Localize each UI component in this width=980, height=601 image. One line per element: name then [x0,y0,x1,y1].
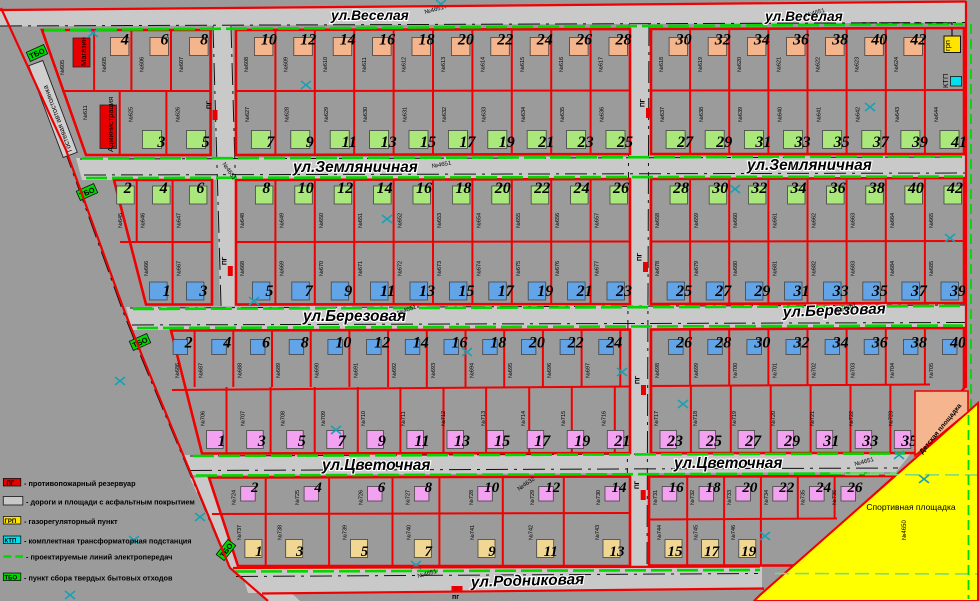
svg-text:№670: №670 [319,261,325,276]
svg-text:1: 1 [163,283,171,300]
svg-text:8: 8 [262,180,270,197]
svg-text:№717: №717 [654,411,660,426]
svg-text:- дороги и площади с асфальтны: - дороги и площади с асфальтным покрытие… [26,498,195,507]
svg-text:37: 37 [872,134,890,151]
svg-text:№686: №686 [175,363,181,378]
svg-text:19: 19 [741,544,757,560]
svg-text:15: 15 [458,283,474,300]
svg-text:42: 42 [946,180,963,197]
svg-text:26: 26 [847,480,864,496]
svg-text:№650: №650 [319,213,325,228]
svg-text:16: 16 [669,480,685,496]
svg-text:№631: №631 [403,107,409,122]
svg-text:№682: №682 [812,261,818,276]
svg-text:№635: №635 [560,107,566,122]
svg-text:№710: №710 [361,411,367,426]
svg-text:№726: №726 [359,490,365,505]
svg-text:№614: №614 [480,57,486,72]
svg-text:31: 31 [822,433,839,450]
svg-text:9: 9 [488,544,496,560]
svg-text:13: 13 [381,134,397,151]
svg-text:№671: №671 [358,261,364,276]
svg-text:16: 16 [452,335,468,352]
svg-text:24: 24 [536,32,553,49]
svg-text:ПГ: ПГ [637,252,644,261]
svg-text:18: 18 [706,480,722,496]
svg-text:№676: №676 [555,261,561,276]
svg-text:2: 2 [250,480,259,496]
svg-text:№684: №684 [890,261,896,276]
svg-text:25: 25 [675,283,692,300]
svg-text:5: 5 [298,433,306,450]
svg-text:№679: №679 [694,261,700,276]
svg-text:20: 20 [528,335,545,352]
svg-text:№651: №651 [358,213,364,228]
svg-text:№617: №617 [599,57,605,72]
svg-text:40: 40 [949,335,966,352]
svg-text:30: 30 [675,32,692,49]
svg-text:36: 36 [829,180,846,197]
svg-text:№718: №718 [693,411,699,426]
svg-text:№629: №629 [324,107,330,122]
svg-text:5: 5 [265,283,273,300]
svg-text:ул.Березовая: ул.Березовая [302,308,406,325]
svg-text:№746: №746 [731,525,737,540]
svg-text:ТБО: ТБО [5,576,18,582]
svg-text:№738: №738 [278,525,284,540]
svg-text:№728: №728 [469,490,475,505]
svg-text:14: 14 [413,335,429,352]
svg-text:№723: №723 [888,411,894,426]
svg-text:№689: №689 [276,363,282,378]
svg-text:9: 9 [344,283,352,300]
svg-text:№605: №605 [60,60,66,75]
svg-text:ГРП: ГРП [5,519,17,525]
svg-text:№615: №615 [520,57,526,72]
svg-text:35: 35 [833,134,850,151]
svg-text:№700: №700 [733,363,739,378]
svg-text:7: 7 [425,544,433,560]
svg-text:12: 12 [374,335,390,352]
svg-text:25: 25 [616,134,633,151]
svg-text:№688: №688 [237,363,243,378]
svg-text:КТП: КТП [5,539,17,545]
svg-text:№713: №713 [481,411,487,426]
svg-text:№702: №702 [812,363,818,378]
svg-text:28: 28 [714,335,731,352]
svg-text:№661: №661 [772,213,778,228]
svg-text:№731: №731 [653,490,659,505]
svg-text:№691: №691 [353,363,359,378]
svg-text:№705: №705 [929,363,935,378]
svg-text:№725: №725 [295,490,301,505]
svg-text:ул.Родниковая: ул.Родниковая [470,571,585,591]
svg-text:29: 29 [715,134,732,151]
svg-text:36: 36 [871,335,888,352]
svg-text:№608: №608 [244,57,250,72]
svg-text:17: 17 [459,134,476,151]
svg-text:№699: №699 [694,363,700,378]
svg-text:23: 23 [615,283,632,300]
svg-text:№732: №732 [690,490,696,505]
svg-text:№708: №708 [281,411,287,426]
svg-text:№624: №624 [894,57,900,72]
svg-text:№730: №730 [596,490,602,505]
svg-text:№739: №739 [343,525,349,540]
svg-text:№605: №605 [102,57,108,72]
svg-text:№687: №687 [199,363,205,378]
svg-text:14: 14 [612,480,628,496]
svg-text:№742: №742 [529,525,535,540]
svg-text:- пункт сбора твердых бытовых: - пункт сбора твердых бытовых отходов [24,574,173,583]
svg-text:12: 12 [337,180,353,197]
svg-text:№740: №740 [406,525,412,540]
svg-text:№622: №622 [816,57,822,72]
svg-text:№680: №680 [733,261,739,276]
svg-text:№690: №690 [315,363,321,378]
svg-text:4: 4 [313,480,322,496]
svg-text:№611: №611 [83,105,89,120]
svg-text:11: 11 [544,544,558,560]
svg-text:№729: №729 [530,490,536,505]
svg-text:№640: №640 [777,107,783,122]
svg-text:№642: №642 [856,107,862,122]
svg-text:20: 20 [741,480,758,496]
svg-text:20: 20 [457,32,474,49]
svg-text:№618: №618 [659,57,665,72]
svg-text:42: 42 [909,32,926,49]
svg-text:№695: №695 [508,363,514,378]
svg-text:8: 8 [200,32,208,49]
svg-text:ПГ: ПГ [640,98,647,107]
svg-text:ул.Веселая: ул.Веселая [764,9,843,24]
svg-text:№674: №674 [476,261,482,276]
svg-text:№677: №677 [595,261,601,276]
svg-text:11: 11 [380,283,395,300]
svg-text:ул.Земляничная: ул.Земляничная [746,157,872,174]
svg-text:ул.Земляничная: ул.Земляничная [292,159,418,176]
svg-text:7: 7 [305,283,314,300]
svg-text:31: 31 [754,134,771,151]
svg-text:28: 28 [672,180,689,197]
svg-text:№638: №638 [699,107,705,122]
svg-text:20: 20 [494,180,511,197]
svg-text:33: 33 [794,134,811,151]
svg-text:№672: №672 [398,261,404,276]
svg-text:31: 31 [793,283,810,300]
svg-text:27: 27 [676,134,694,151]
svg-text:№627: №627 [245,107,251,122]
svg-text:пг: пг [452,594,459,601]
svg-text:1: 1 [255,544,263,560]
svg-text:6: 6 [262,335,270,352]
svg-text:№692: №692 [392,363,398,378]
svg-text:№610: №610 [323,57,329,72]
svg-text:21: 21 [576,283,593,300]
svg-text:№623: №623 [855,57,861,72]
svg-text:9: 9 [306,134,314,151]
svg-text:38: 38 [831,32,848,49]
svg-text:ул.Цветочная: ул.Цветочная [321,457,430,474]
svg-text:№644: №644 [934,107,940,122]
svg-text:№654: №654 [476,213,482,228]
svg-text:№648: №648 [240,213,246,228]
svg-text:32: 32 [793,335,810,352]
svg-text:32: 32 [714,32,731,49]
svg-text:28: 28 [615,32,632,49]
svg-text:№737: №737 [237,525,243,540]
svg-text:19: 19 [499,134,515,151]
svg-text:4: 4 [120,32,129,49]
svg-text:30: 30 [711,180,728,197]
svg-text:№606: №606 [139,57,145,72]
svg-text:10: 10 [484,480,500,496]
svg-text:3: 3 [257,433,266,450]
svg-text:37: 37 [910,283,928,300]
svg-text:6: 6 [161,32,169,49]
svg-text:№719: №719 [732,411,738,426]
svg-text:№628: №628 [284,107,290,122]
svg-text:№743: №743 [595,525,601,540]
svg-text:№649: №649 [279,213,285,228]
svg-text:15: 15 [420,134,436,151]
svg-text:40: 40 [870,32,887,49]
svg-text:Магазин: Магазин [79,37,88,66]
svg-text:11: 11 [414,433,429,450]
svg-text:№744: №744 [657,525,663,540]
svg-text:14: 14 [377,180,393,197]
svg-text:38: 38 [868,180,885,197]
svg-text:№685: №685 [929,261,935,276]
svg-text:29: 29 [783,433,800,450]
svg-text:ПГ: ПГ [7,481,15,487]
svg-text:34: 34 [790,180,807,197]
svg-text:№630: №630 [363,107,369,122]
svg-text:№714: №714 [521,411,527,426]
svg-text:№626: №626 [175,107,181,122]
svg-text:№636: №636 [600,107,606,122]
svg-text:грп: грп [943,40,952,51]
svg-text:№735: №735 [801,490,807,505]
svg-text:№621: №621 [776,57,782,72]
svg-text:№658: №658 [655,213,661,228]
svg-text:№721: №721 [810,411,816,426]
svg-text:27: 27 [744,433,762,450]
svg-text:№4650: №4650 [901,520,908,540]
svg-text:21: 21 [537,134,554,151]
svg-text:№660: №660 [733,213,739,228]
svg-text:15: 15 [668,544,684,560]
svg-text:№609: №609 [283,57,289,72]
svg-text:№611: №611 [362,57,368,72]
svg-text:№612: №612 [402,57,408,72]
svg-text:№645: №645 [118,213,124,228]
svg-text:36: 36 [792,32,809,49]
svg-text:39: 39 [949,283,966,300]
svg-text:№646: №646 [141,213,147,228]
svg-text:ул.Березовая: ул.Березовая [782,300,886,321]
svg-text:ул.Цветочная: ул.Цветочная [673,455,782,472]
svg-text:27: 27 [714,283,732,300]
svg-text:Спортивная площадка: Спортивная площадка [866,502,956,512]
svg-text:№693: №693 [431,363,437,378]
svg-text:16: 16 [416,180,432,197]
svg-text:15: 15 [494,433,510,450]
svg-text:№745: №745 [694,525,700,540]
svg-text:№656: №656 [555,213,561,228]
svg-text:№666: №666 [144,261,150,276]
svg-text:13: 13 [419,283,435,300]
svg-text:- газорегуляторный пункт: - газорегуляторный пункт [24,517,118,526]
svg-text:№634: №634 [521,107,527,122]
svg-text:24: 24 [815,480,832,496]
svg-text:№633: №633 [481,107,487,122]
svg-text:33: 33 [861,433,878,450]
svg-text:№681: №681 [772,261,778,276]
svg-text:№632: №632 [442,107,448,122]
svg-text:№668: №668 [240,261,246,276]
svg-text:ПГ: ПГ [221,256,228,265]
svg-text:№727: №727 [405,490,411,505]
svg-text:№641: №641 [817,107,823,122]
svg-text:17: 17 [498,283,515,300]
svg-text:- проектируемые линий электроп: - проектируемые линий электропередач [26,553,172,562]
svg-text:6: 6 [378,480,386,496]
svg-text:№652: №652 [398,213,404,228]
svg-text:3: 3 [156,134,165,151]
svg-text:№675: №675 [516,261,522,276]
svg-text:№736: №736 [832,490,838,505]
svg-text:5: 5 [202,134,210,151]
svg-text:КТП: КТП [941,74,950,88]
svg-text:№665: №665 [929,213,935,228]
svg-text:12: 12 [300,32,316,49]
svg-text:№715: №715 [561,411,567,426]
svg-text:№662: №662 [812,213,818,228]
svg-text:№653: №653 [437,213,443,228]
svg-text:10: 10 [298,180,314,197]
svg-text:18: 18 [455,180,471,197]
svg-text:№637: №637 [660,107,666,122]
svg-text:№724: №724 [232,490,238,505]
svg-text:№619: №619 [698,57,704,72]
svg-text:№709: №709 [321,411,327,426]
svg-text:№657: №657 [595,213,601,228]
svg-text:32: 32 [750,180,767,197]
svg-text:7: 7 [266,134,275,151]
svg-text:23: 23 [577,134,594,151]
svg-text:№655: №655 [516,213,522,228]
svg-text:№620: №620 [737,57,743,72]
svg-text:17: 17 [704,544,720,560]
svg-text:22: 22 [496,32,513,49]
svg-text:24: 24 [605,335,622,352]
svg-text:№704: №704 [890,363,896,378]
svg-text:5: 5 [361,544,369,560]
svg-text:№678: №678 [655,261,661,276]
svg-text:3: 3 [198,283,207,300]
svg-text:18: 18 [490,335,506,352]
svg-text:№639: №639 [738,107,744,122]
svg-text:2: 2 [184,335,193,352]
svg-text:33: 33 [832,283,849,300]
svg-text:26: 26 [675,335,692,352]
svg-text:21: 21 [613,433,630,450]
svg-text:23: 23 [666,433,683,450]
svg-text:29: 29 [753,283,770,300]
svg-text:3: 3 [295,544,304,560]
svg-text:№701: №701 [772,363,778,378]
svg-text:№683: №683 [851,261,857,276]
svg-text:34: 34 [753,32,770,49]
svg-text:№643: №643 [895,107,901,122]
svg-text:13: 13 [454,433,470,450]
svg-text:30: 30 [753,335,770,352]
svg-text:9: 9 [378,433,386,450]
svg-text:25: 25 [705,433,722,450]
svg-text:№697: №697 [586,363,592,378]
svg-text:№625: №625 [129,107,135,122]
svg-text:4: 4 [222,335,231,352]
svg-text:ПГ: ПГ [634,480,641,489]
svg-text:34: 34 [832,335,849,352]
svg-text:17: 17 [534,433,551,450]
svg-text:10: 10 [335,335,351,352]
svg-text:19: 19 [574,433,590,450]
svg-text:8: 8 [425,480,433,496]
svg-text:№712: №712 [441,411,447,426]
svg-text:13: 13 [610,544,626,560]
svg-text:12: 12 [545,480,561,496]
svg-text:№741: №741 [470,525,476,540]
svg-text:41: 41 [950,134,967,151]
svg-text:№698: №698 [655,363,661,378]
svg-text:10: 10 [261,32,277,49]
svg-text:22: 22 [533,180,550,197]
svg-text:39: 39 [911,134,928,151]
svg-text:- противопожарный резервуар: - противопожарный резервуар [24,479,136,488]
svg-text:№733: №733 [727,490,733,505]
svg-text:№694: №694 [470,363,476,378]
svg-text:26: 26 [575,32,592,49]
svg-text:16: 16 [379,32,395,49]
svg-text:ул.Веселая: ул.Веселая [330,8,409,23]
svg-text:38: 38 [910,335,927,352]
svg-text:№673: №673 [437,261,443,276]
svg-text:№722: №722 [849,411,855,426]
svg-text:№711: №711 [401,411,407,426]
svg-text:№707: №707 [241,411,247,426]
svg-text:24: 24 [573,180,590,197]
svg-text:№659: №659 [694,213,700,228]
svg-text:- комплектная трансформаторная: - комплектная трансформаторная подстанци… [24,537,192,546]
svg-text:Администрация: Администрация [106,97,115,152]
svg-text:№669: №669 [279,261,285,276]
svg-text:№607: №607 [179,57,185,72]
svg-text:22: 22 [567,335,584,352]
svg-text:ПГ: ПГ [635,375,642,384]
svg-text:№647: №647 [177,213,183,228]
svg-text:№734: №734 [764,490,770,505]
svg-text:14: 14 [340,32,356,49]
svg-text:№716: №716 [601,411,607,426]
svg-text:35: 35 [871,283,888,300]
svg-text:№664: №664 [890,213,896,228]
svg-text:№703: №703 [851,363,857,378]
svg-text:№616: №616 [559,57,565,72]
svg-text:2: 2 [123,180,132,197]
svg-text:18: 18 [419,32,435,49]
